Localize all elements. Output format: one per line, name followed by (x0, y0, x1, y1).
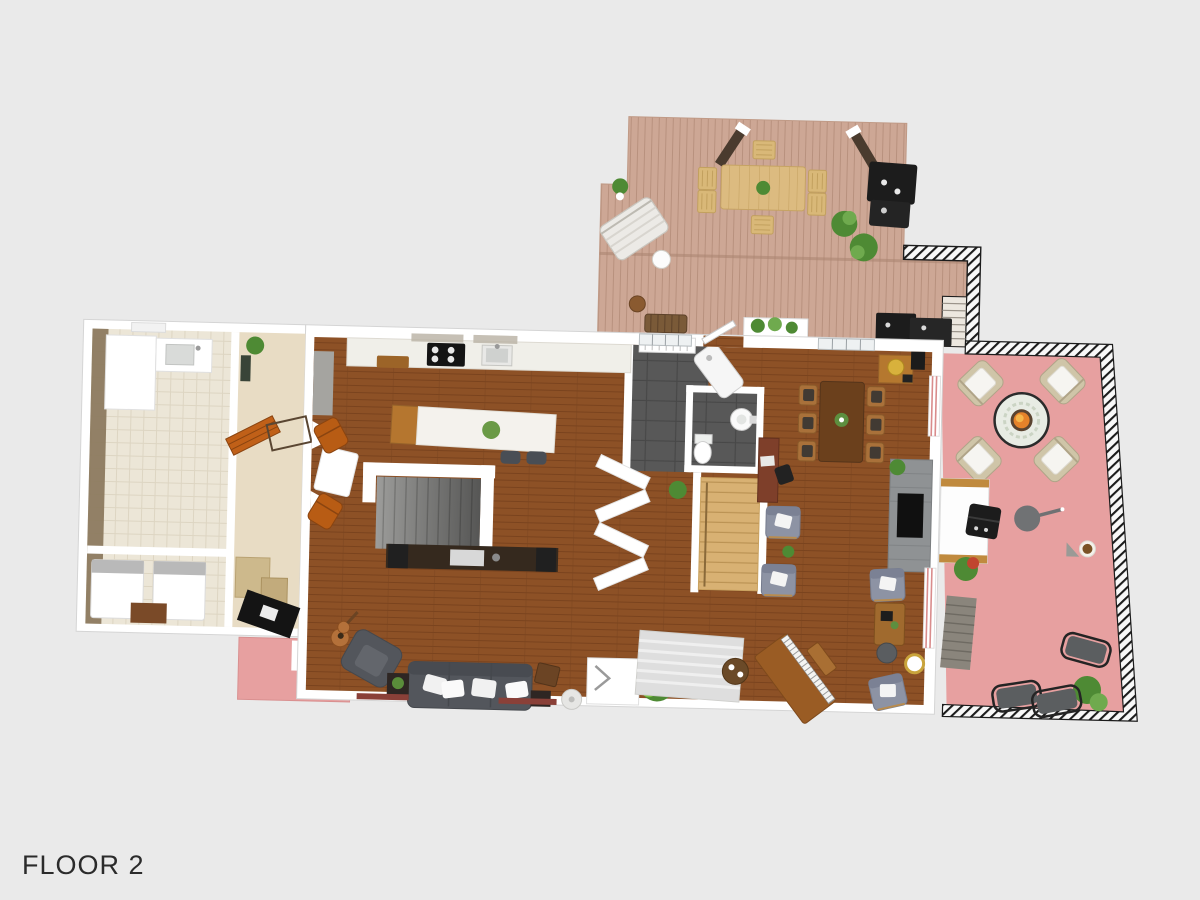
garage (85, 322, 238, 627)
patio-grill (965, 503, 1002, 540)
dining-chair (866, 442, 884, 462)
outdoor-chair (808, 193, 827, 215)
floor-plan-stage (0, 0, 1200, 900)
corner-chair (870, 568, 905, 602)
outdoor-chair (808, 170, 827, 192)
corner-chair (868, 673, 908, 712)
outdoor-chair (698, 190, 717, 212)
floor-lamp (561, 689, 581, 709)
accent-table (534, 662, 560, 687)
dining-chair (798, 413, 816, 433)
dining-chair (798, 441, 816, 461)
backsplash (473, 335, 517, 344)
bar-cart (878, 355, 913, 384)
patio-window (928, 376, 940, 436)
av-equipment (450, 549, 484, 566)
toilet (694, 434, 712, 463)
wicker-bench (645, 314, 687, 333)
window (639, 334, 691, 346)
wall-art (240, 355, 251, 381)
entry-alcove (587, 658, 640, 705)
window-sill (357, 693, 409, 700)
gold-basket (905, 655, 923, 673)
window (818, 338, 874, 350)
reading-chair (766, 506, 801, 539)
backsplash (411, 333, 463, 342)
reading-chair (761, 564, 796, 597)
pillow (441, 679, 465, 698)
storage-chest (130, 603, 166, 624)
main-staircase (690, 472, 768, 594)
speaker (388, 544, 409, 568)
dining-chair (866, 414, 884, 434)
stone-counter (313, 351, 335, 415)
kitchen-sink (482, 344, 513, 366)
floor-label: FLOOR 2 (22, 850, 145, 881)
deck-stool (629, 296, 645, 312)
bar-stool (526, 451, 546, 464)
round-table (722, 658, 749, 685)
dining-table (819, 381, 865, 462)
outdoor-chair (753, 141, 775, 160)
pillow (471, 678, 497, 699)
floor-plan-graphic (0, 0, 1200, 900)
outdoor-chair (751, 216, 773, 235)
cooktop (427, 343, 466, 367)
patio-window (923, 568, 936, 648)
wall-tv (911, 352, 925, 370)
dining-chair (799, 385, 817, 405)
lounger-side-table (652, 250, 670, 268)
cutting-board (377, 356, 409, 369)
fireplace (888, 459, 933, 572)
garage-window (131, 323, 165, 333)
utility-sink (156, 338, 213, 372)
outdoor-chair (698, 167, 717, 189)
round-ottoman (877, 643, 897, 663)
outdoor-dining-table (721, 165, 806, 211)
coffee-table (874, 603, 905, 646)
dining-chair (867, 387, 885, 407)
pillow (505, 680, 529, 699)
speaker (536, 547, 557, 571)
patio (932, 340, 1146, 721)
bar-stool (500, 451, 520, 464)
storage-cabinet (105, 335, 157, 410)
media-console (386, 544, 559, 572)
fire-pit-table (994, 393, 1049, 448)
